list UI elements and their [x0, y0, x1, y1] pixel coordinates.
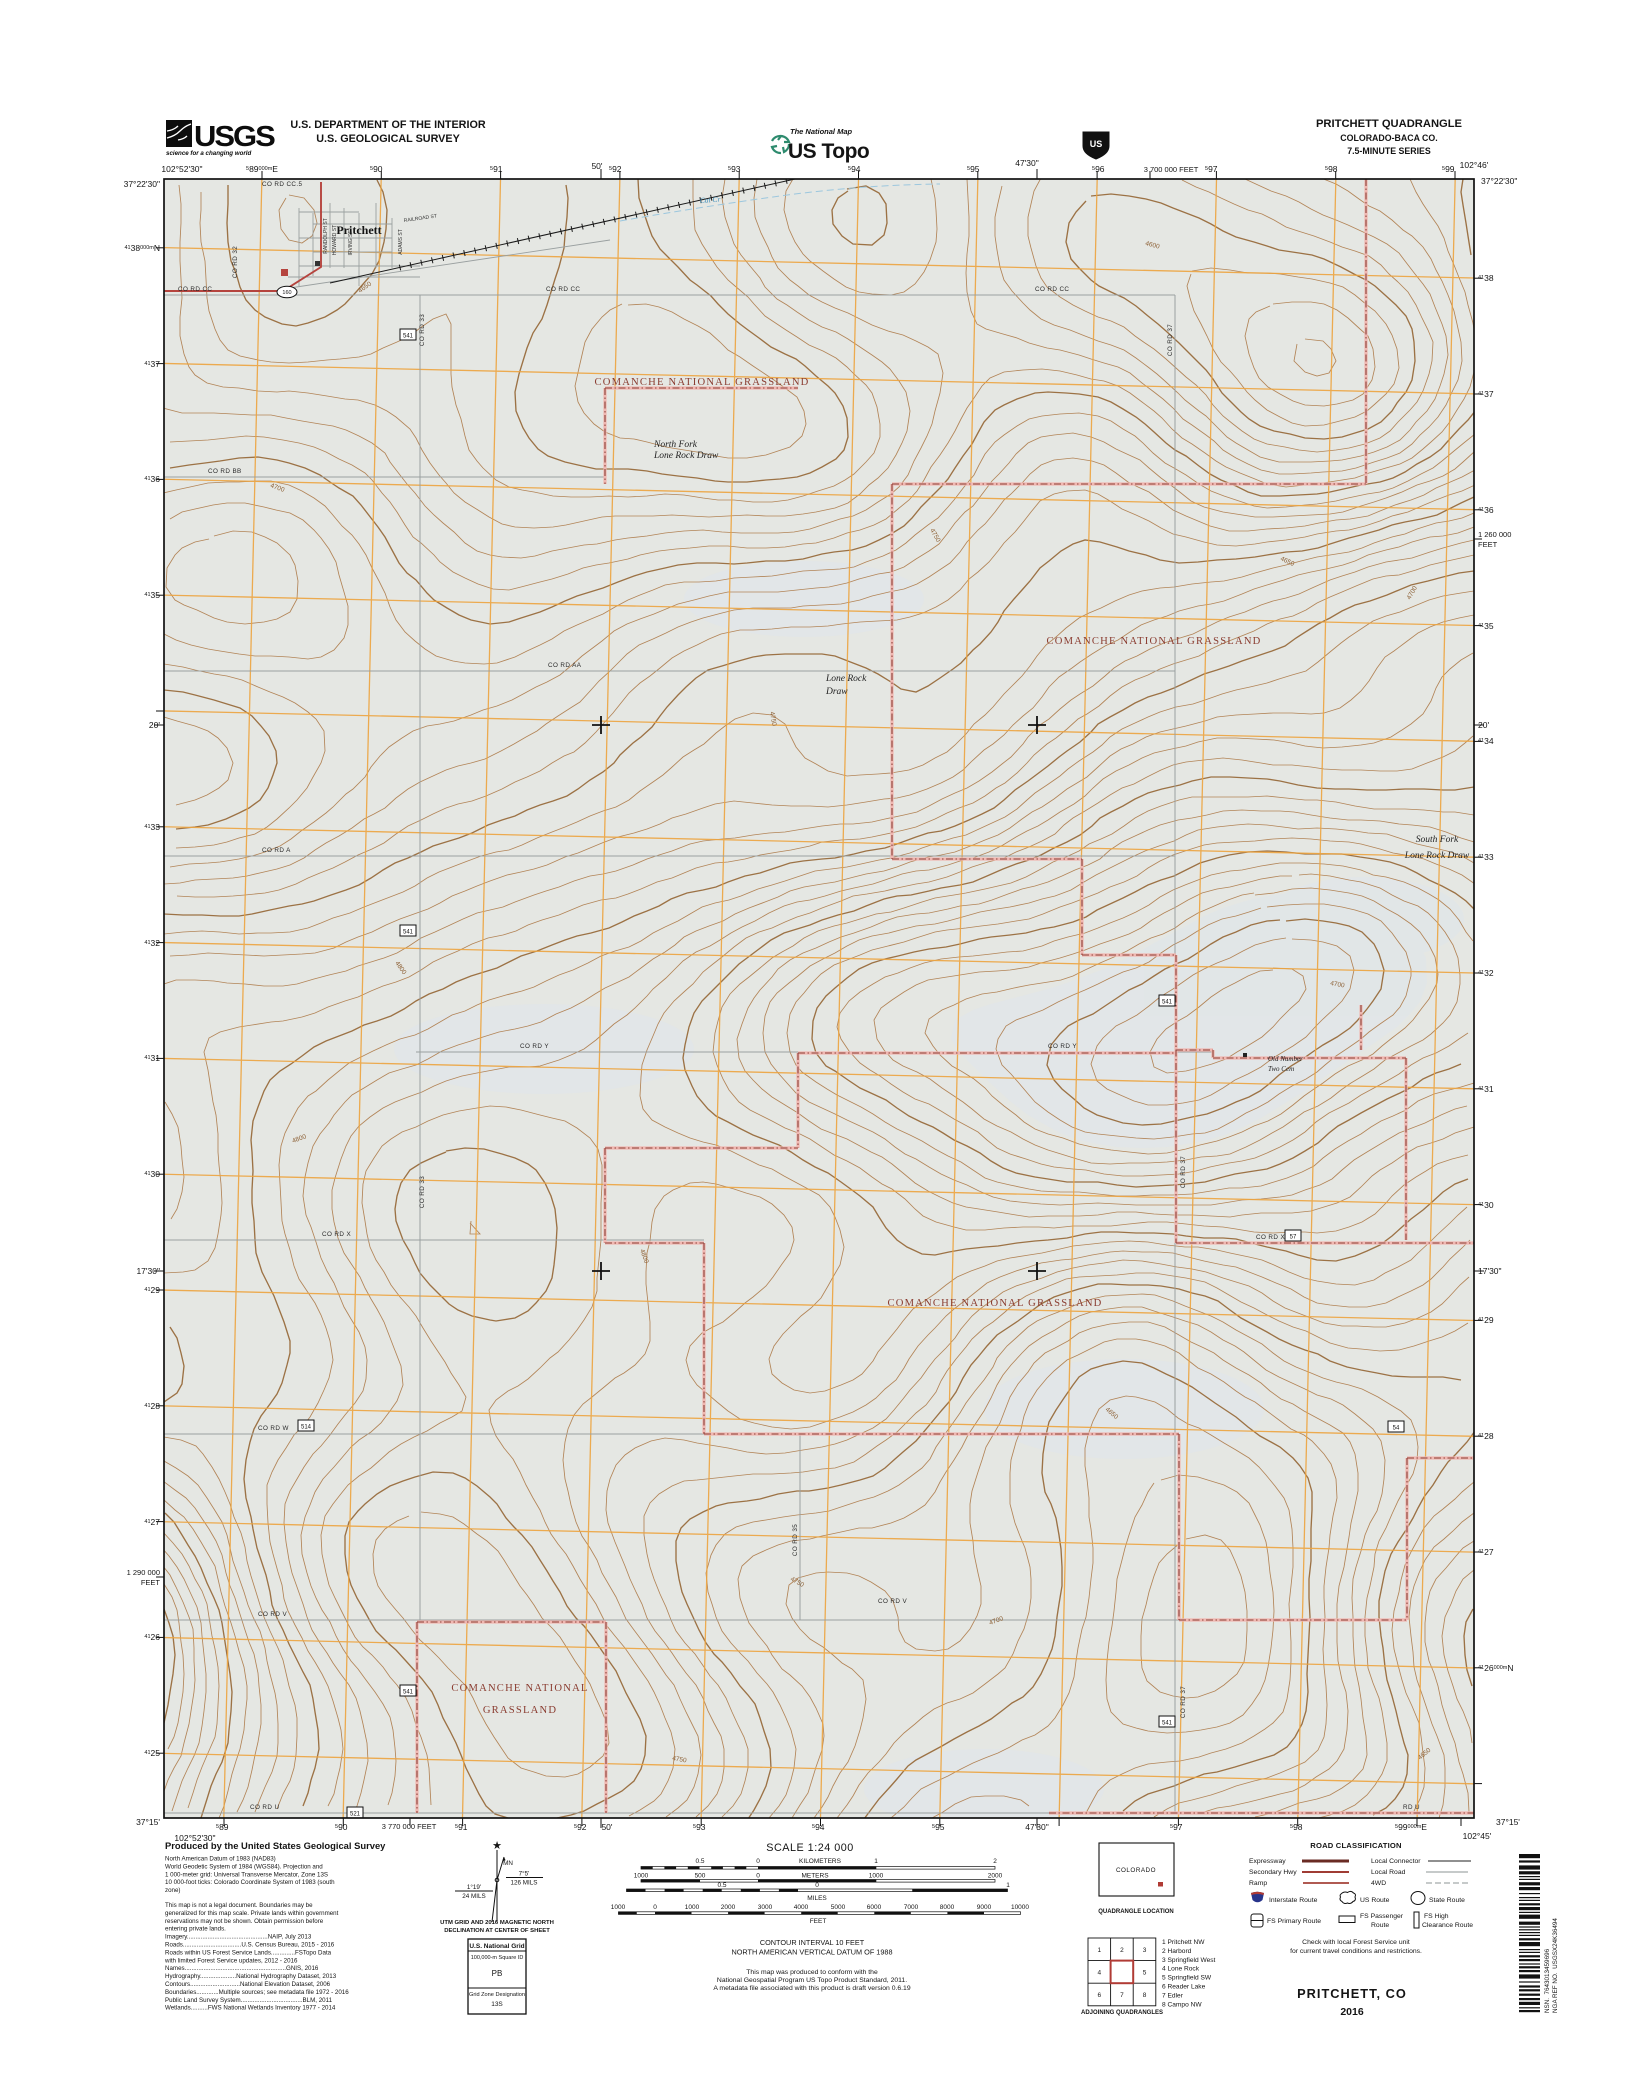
svg-text:5 Springfield SW: 5 Springfield SW [1162, 1975, 1212, 1982]
svg-text:10000: 10000 [1011, 1904, 1029, 1911]
svg-text:State Route: State Route [1429, 1897, 1465, 1904]
svg-text:1 290 000: 1 290 000 [127, 1568, 160, 1577]
svg-text:CO RD 33: CO RD 33 [419, 1176, 426, 1208]
svg-text:126 MILS: 126 MILS [511, 1880, 538, 1887]
svg-text:CO RD W: CO RD W [258, 1425, 289, 1432]
svg-text:4WD: 4WD [1371, 1880, 1386, 1887]
svg-text:4000: 4000 [794, 1904, 809, 1911]
svg-text:0: 0 [756, 1873, 760, 1880]
svg-text:This map is not a legal docume: This map is not a legal document. Bounda… [165, 1902, 313, 1909]
svg-text:8 Campo NW: 8 Campo NW [1162, 2001, 1202, 2008]
svg-text:★: ★ [492, 1840, 502, 1852]
svg-text:CO RD BB: CO RD BB [208, 468, 242, 475]
svg-text:Lone Rock: Lone Rock [825, 674, 867, 684]
svg-text:RANDOLPH ST: RANDOLPH ST [323, 218, 329, 254]
svg-text:2016: 2016 [1340, 2006, 1364, 2018]
svg-text:7 Edler: 7 Edler [1162, 1992, 1184, 1999]
svg-text:Contours......................: Contours.............................Nat… [165, 1981, 331, 1988]
svg-text:2: 2 [993, 1858, 997, 1865]
svg-text:A metadata file associated wit: A metadata file associated with this pro… [713, 1985, 910, 1992]
svg-text:37°15': 37°15' [136, 1817, 160, 1827]
svg-text:National Geospatial Program US: National Geospatial Program US Topo Prod… [717, 1977, 907, 1984]
svg-text:13S: 13S [491, 2001, 503, 2008]
svg-text:U.S. National Grid: U.S. National Grid [469, 1943, 524, 1950]
svg-text:CO RD 35: CO RD 35 [792, 1524, 799, 1556]
svg-text:17'30": 17'30" [136, 1266, 160, 1276]
svg-text:CO RD 37: CO RD 37 [1167, 324, 1174, 356]
svg-text:1 260 000: 1 260 000 [1478, 530, 1511, 539]
svg-text:COMANCHE NATIONAL GRASSLAND: COMANCHE NATIONAL GRASSLAND [1046, 636, 1261, 647]
svg-text:PRITCHETT QUADRANGLE: PRITCHETT QUADRANGLE [1316, 118, 1463, 130]
svg-text:0: 0 [653, 1904, 657, 1911]
svg-text:NSN. 7643013459696: NSN. 7643013459696 [1544, 1948, 1551, 2013]
svg-text:CO RD Y: CO RD Y [520, 1043, 549, 1050]
svg-text:3 Springfield West: 3 Springfield West [1162, 1957, 1216, 1964]
svg-text:6 Reader Lake: 6 Reader Lake [1162, 1984, 1206, 1991]
svg-text:1000: 1000 [685, 1904, 700, 1911]
svg-text:Local Connector: Local Connector [1371, 1858, 1421, 1865]
svg-text:Expressway: Expressway [1249, 1858, 1286, 1865]
svg-text:Hydrography...................: Hydrography.....................National… [165, 1973, 337, 1980]
svg-text:3 770 000 FEET: 3 770 000 FEET [382, 1822, 437, 1831]
svg-text:ADJOINING QUADRANGLES: ADJOINING QUADRANGLES [1081, 2010, 1163, 2016]
svg-text:CO RD A: CO RD A [262, 847, 291, 854]
svg-text:Lone Rock Draw: Lone Rock Draw [1404, 851, 1470, 861]
svg-text:4: 4 [1097, 1969, 1101, 1976]
svg-text:7: 7 [1120, 1992, 1124, 1999]
svg-text:6: 6 [1097, 1992, 1101, 1999]
svg-text:7000: 7000 [904, 1904, 919, 1911]
svg-text:KILOMETERS: KILOMETERS [799, 1858, 842, 1865]
svg-text:FS High: FS High [1424, 1913, 1449, 1920]
svg-text:RD U: RD U [1403, 1804, 1420, 1811]
svg-text:Wetlands..........FWS Nationa: Wetlands..........FWS National Wetlands … [165, 2005, 336, 2012]
svg-text:4 Lone Rock: 4 Lone Rock [1162, 1966, 1200, 1973]
svg-text:The National Map: The National Map [790, 127, 853, 136]
svg-text:Local Road: Local Road [1371, 1869, 1406, 1876]
svg-text:Draw: Draw [825, 687, 848, 697]
svg-text:3: 3 [1143, 1947, 1147, 1954]
svg-text:54: 54 [1393, 1426, 1400, 1432]
svg-text:DECLINATION AT CENTER OF SHEET: DECLINATION AT CENTER OF SHEET [444, 1928, 550, 1934]
svg-text:20': 20' [149, 720, 160, 730]
svg-text:USGS: USGS [194, 121, 275, 153]
svg-text:CO RD Y: CO RD Y [1048, 1043, 1077, 1050]
svg-text:50': 50' [591, 161, 602, 171]
svg-text:Roads within US Forest Ser: Roads within US Forest Service Lands....… [165, 1949, 332, 1956]
svg-text:Ramp: Ramp [1249, 1880, 1267, 1887]
svg-text:FS Passenger: FS Passenger [1360, 1913, 1404, 1920]
svg-text:COMANCHE NATIONAL GRASSLAND: COMANCHE NATIONAL GRASSLAND [887, 1298, 1102, 1309]
svg-text:9000: 9000 [977, 1904, 992, 1911]
svg-text:514: 514 [301, 1425, 312, 1431]
svg-text:CO RD AA: CO RD AA [548, 662, 582, 669]
svg-text:COMANCHE NATIONAL: COMANCHE NATIONAL [451, 1683, 588, 1694]
svg-text:MN: MN [503, 1860, 513, 1867]
svg-text:South Fork: South Fork [1416, 835, 1459, 845]
svg-text:CO RD CC: CO RD CC [1035, 286, 1069, 293]
svg-text:COMANCHE NATIONAL GRASSLAND: COMANCHE NATIONAL GRASSLAND [594, 377, 809, 388]
svg-text:3000: 3000 [758, 1904, 773, 1911]
svg-text:Names.........................: Names...................................… [165, 1965, 319, 1972]
svg-text:SCALE 1:24 000: SCALE 1:24 000 [766, 1842, 853, 1854]
svg-text:6000: 6000 [867, 1904, 882, 1911]
svg-text:17'30": 17'30" [1478, 1266, 1502, 1276]
svg-text:37°22'30": 37°22'30" [1481, 176, 1517, 186]
svg-text:541: 541 [1162, 1000, 1173, 1006]
svg-text:CO RD CC: CO RD CC [178, 286, 212, 293]
svg-text:Check with local Forest Servic: Check with local Forest Service unit [1302, 1939, 1410, 1946]
svg-text:CO RD V: CO RD V [878, 1598, 907, 1605]
svg-text:1 Pritchett NW: 1 Pritchett NW [1162, 1939, 1205, 1946]
svg-text:QUADRANGLE LOCATION: QUADRANGLE LOCATION [1098, 1909, 1174, 1915]
svg-text:CO RD X: CO RD X [1256, 1234, 1285, 1241]
svg-text:1 000-meter grid: Universal Tr: 1 000-meter grid: Universal Transverse M… [165, 1871, 328, 1878]
svg-text:PB: PB [492, 1969, 503, 1978]
svg-text:FEET: FEET [810, 1918, 827, 1925]
svg-text:U.S. GEOLOGICAL SURVEY: U.S. GEOLOGICAL SURVEY [316, 133, 460, 145]
svg-text:US Topo: US Topo [788, 140, 869, 163]
svg-text:Secondary Hwy: Secondary Hwy [1249, 1869, 1297, 1876]
svg-text:102°45': 102°45' [1463, 1831, 1492, 1841]
svg-text:North Fork: North Fork [653, 440, 698, 450]
svg-text:0: 0 [756, 1858, 760, 1865]
svg-text:North American Datum of 1983 (: North American Datum of 1983 (NAD83) [165, 1856, 276, 1863]
svg-text:541: 541 [403, 1690, 414, 1696]
svg-text:NGA REF NO. USGSX24K36494: NGA REF NO. USGSX24K36494 [1552, 1918, 1559, 2013]
svg-text:MILES: MILES [807, 1895, 827, 1902]
svg-text:37°15': 37°15' [1496, 1817, 1520, 1827]
svg-text:US Route: US Route [1360, 1897, 1390, 1904]
svg-text:7°5': 7°5' [519, 1870, 530, 1878]
svg-text:1000: 1000 [634, 1873, 649, 1880]
svg-text:47'30": 47'30" [1025, 1822, 1049, 1832]
svg-text:UTM GRID AND 2016 MAGNETIC NOR: UTM GRID AND 2016 MAGNETIC NORTH [440, 1920, 554, 1926]
svg-text:HOWARD ST: HOWARD ST [332, 225, 338, 255]
svg-text:5: 5 [1143, 1969, 1147, 1976]
svg-text:PRITCHETT, CO: PRITCHETT, CO [1297, 1986, 1407, 2001]
svg-text:Grid Zone Designation: Grid Zone Designation [469, 1992, 525, 1998]
svg-text:CO RD U: CO RD U [250, 1804, 279, 1811]
svg-text:0.5: 0.5 [717, 1882, 726, 1889]
svg-text:Public Land Survey System..: Public Land Survey System...............… [165, 1997, 333, 2004]
svg-text:reservations may not be shown.: reservations may not be shown. Obtain pe… [165, 1918, 324, 1925]
svg-text:37°22'30": 37°22'30" [124, 179, 160, 189]
svg-text:8: 8 [1143, 1992, 1147, 1999]
svg-text:1: 1 [874, 1858, 878, 1865]
svg-text:Lone Rock Draw: Lone Rock Draw [653, 451, 719, 461]
svg-text:ADAMS ST: ADAMS ST [398, 229, 404, 255]
svg-text:CO RD V: CO RD V [258, 1611, 287, 1618]
svg-text:2: 2 [1120, 1947, 1124, 1954]
svg-text:7.5-MINUTE SERIES: 7.5-MINUTE SERIES [1347, 146, 1431, 156]
svg-text:Clearance Route: Clearance Route [1422, 1922, 1473, 1929]
svg-text:CONTOUR INTERVAL 10 FEET: CONTOUR INTERVAL 10 FEET [760, 1938, 865, 1947]
svg-text:FS Primary Route: FS Primary Route [1267, 1918, 1321, 1925]
svg-text:102°46': 102°46' [1460, 160, 1489, 170]
svg-text:20': 20' [1478, 720, 1489, 730]
svg-text:ROAD CLASSIFICATION: ROAD CLASSIFICATION [1310, 1841, 1401, 1850]
svg-text:Two Cem: Two Cem [1268, 1065, 1294, 1073]
svg-text:1000: 1000 [611, 1904, 626, 1911]
svg-text:8000: 8000 [940, 1904, 955, 1911]
svg-text:57: 57 [1290, 1235, 1297, 1241]
svg-text:5000: 5000 [831, 1904, 846, 1911]
svg-text:Interstate Route: Interstate Route [1269, 1897, 1318, 1904]
svg-text:160: 160 [282, 290, 291, 296]
svg-text:2000: 2000 [721, 1904, 736, 1911]
svg-text:500: 500 [695, 1873, 706, 1880]
svg-text:2 Harbord: 2 Harbord [1162, 1948, 1192, 1955]
svg-text:for current travel conditions: for current travel conditions and restri… [1290, 1948, 1422, 1955]
svg-text:entering private lands.: entering private lands. [165, 1926, 226, 1933]
svg-text:GRASSLAND: GRASSLAND [483, 1705, 557, 1716]
svg-text:1°19': 1°19' [467, 1883, 481, 1891]
svg-text:1000: 1000 [869, 1873, 884, 1880]
svg-text:CO RD 37: CO RD 37 [1180, 1156, 1187, 1188]
svg-text:science for a changing world: science for a changing world [166, 150, 251, 157]
svg-text:Boundaries.............Multipl: Boundaries.............Multiple sources;… [165, 1989, 349, 1996]
svg-text:generalized for this map scale: generalized for this map scale. Private … [165, 1910, 339, 1917]
svg-text:Route: Route [1371, 1922, 1389, 1929]
svg-text:100,000-m Square ID: 100,000-m Square ID [471, 1955, 524, 1961]
svg-text:541: 541 [403, 930, 414, 936]
svg-text:2000: 2000 [988, 1873, 1003, 1880]
svg-text:World Geodetic System of 1984: World Geodetic System of 1984 (WGS84). P… [165, 1863, 323, 1870]
svg-text:541: 541 [403, 334, 414, 340]
svg-text:NORTH AMERICAN VERTICAL DATUM: NORTH AMERICAN VERTICAL DATUM OF 1988 [731, 1948, 892, 1957]
svg-text:FEET: FEET [1478, 540, 1498, 549]
svg-text:10 000-foot ticks: Colorado Co: 10 000-foot ticks: Colorado Coordinate S… [165, 1879, 335, 1886]
svg-text:521: 521 [350, 1812, 361, 1818]
svg-text:102°52'30": 102°52'30" [161, 164, 202, 174]
svg-text:CO RD CC.5: CO RD CC.5 [262, 181, 302, 188]
svg-text:US: US [1090, 139, 1103, 149]
svg-text:0: 0 [815, 1882, 819, 1889]
svg-text:CO RD 33: CO RD 33 [419, 314, 426, 346]
svg-text:zone): zone) [165, 1887, 180, 1894]
svg-text:1: 1 [1006, 1882, 1010, 1889]
svg-text:0.5: 0.5 [695, 1858, 704, 1865]
svg-text:47'30": 47'30" [1015, 158, 1039, 168]
svg-text:Imagery.......................: Imagery.................................… [165, 1934, 312, 1941]
svg-text:1: 1 [1097, 1947, 1101, 1954]
svg-text:Old Number: Old Number [1268, 1055, 1303, 1063]
svg-text:50': 50' [601, 1822, 612, 1832]
svg-text:Cat Cr: Cat Cr [700, 195, 721, 205]
svg-text:24 MILS: 24 MILS [462, 1893, 485, 1900]
svg-text:CO RD X: CO RD X [322, 1231, 351, 1238]
svg-text:CO RD 32: CO RD 32 [232, 246, 239, 278]
svg-text:U.S. DEPARTMENT OF THE INTERIO: U.S. DEPARTMENT OF THE INTERIOR [290, 119, 486, 131]
svg-text:COLORADO-BACA CO.: COLORADO-BACA CO. [1340, 133, 1437, 143]
svg-text:IRVING ST: IRVING ST [348, 231, 354, 256]
svg-text:This map was produced to confo: This map was produced to conform with th… [746, 1969, 878, 1976]
svg-text:CO RD 37: CO RD 37 [1180, 1686, 1187, 1718]
svg-text:Roads.........................: Roads..................................U… [165, 1942, 335, 1949]
svg-text:Produced by the United States: Produced by the United States Geological… [165, 1840, 386, 1851]
svg-text:Pritchett: Pritchett [336, 223, 381, 237]
svg-text:METERS: METERS [801, 1873, 829, 1880]
svg-text:541: 541 [1162, 1721, 1173, 1727]
svg-text:with limited Forest Service up: with limited Forest Service updates, 201… [164, 1957, 298, 1964]
svg-text:3 700 000 FEET: 3 700 000 FEET [1144, 165, 1199, 174]
svg-text:FEET: FEET [141, 1578, 161, 1587]
svg-text:COLORADO: COLORADO [1116, 1867, 1156, 1874]
svg-text:CO RD CC: CO RD CC [546, 286, 580, 293]
